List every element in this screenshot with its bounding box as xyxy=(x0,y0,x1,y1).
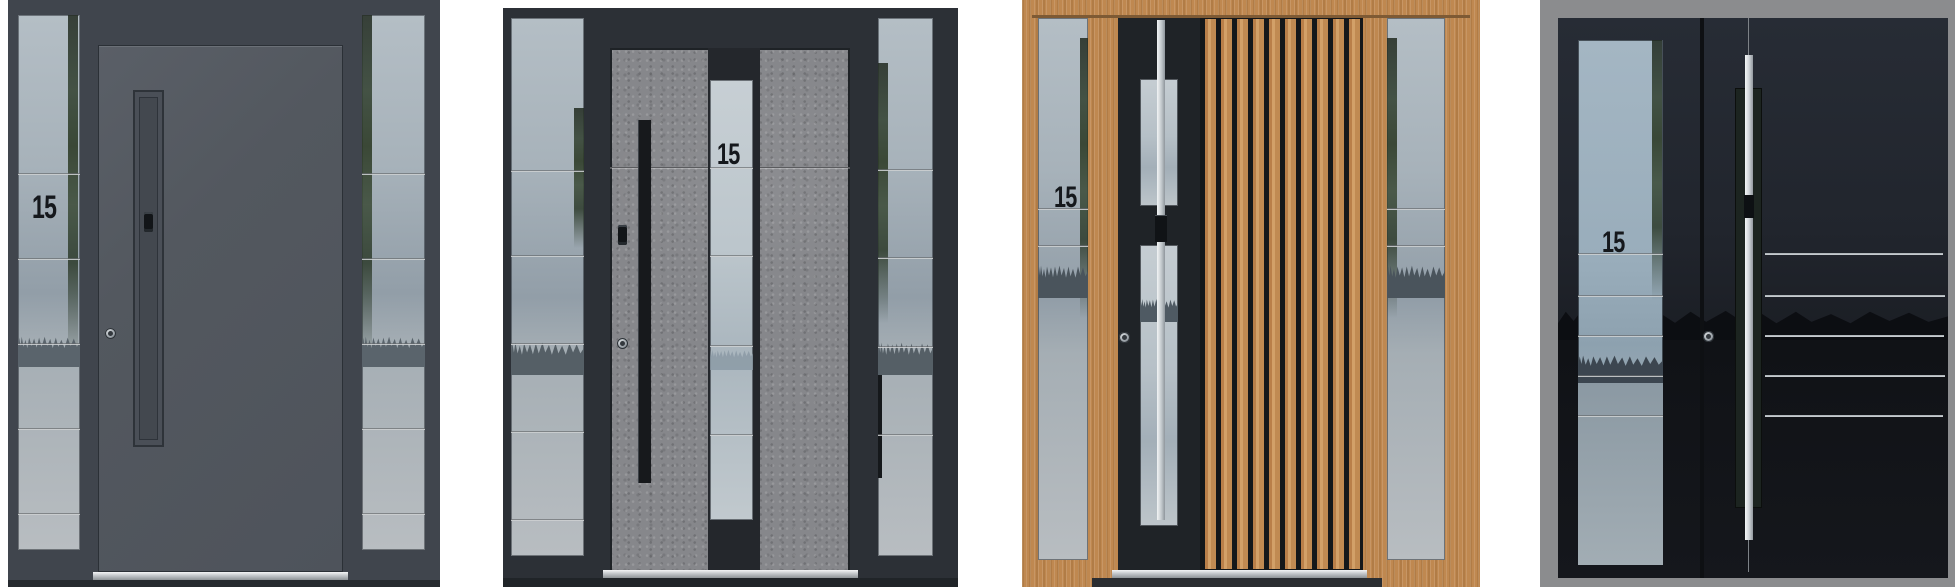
forest-reflection xyxy=(1578,345,1663,383)
house-number: 15 xyxy=(1054,183,1077,213)
steel-inlay-line xyxy=(1765,253,1943,255)
lock-cylinder-knob xyxy=(617,338,628,349)
handle-slot xyxy=(139,97,158,440)
tree-reflection xyxy=(68,15,78,360)
threshold xyxy=(93,572,348,580)
glass-divider xyxy=(1387,245,1445,247)
door-2-center-glass: 15 xyxy=(710,80,753,520)
bottom-rail xyxy=(8,580,440,587)
glass-divider xyxy=(878,346,933,348)
glass-divider xyxy=(878,257,933,259)
dark-reflection-band xyxy=(878,358,882,478)
door-3-figure[interactable]: 15 xyxy=(1022,0,1480,587)
glass-divider xyxy=(878,169,933,171)
door-2-figure[interactable]: 15 xyxy=(503,8,958,587)
door-2-right-sidelight-glass xyxy=(878,18,933,556)
glass-divider xyxy=(710,167,753,169)
glass-divider xyxy=(878,434,933,436)
forest-reflection xyxy=(878,330,933,375)
door-catalog-page: { "page": { "description": "Product gall… xyxy=(0,0,1960,587)
fingerprint-reader xyxy=(618,225,627,245)
lock-cylinder-knob xyxy=(1119,332,1130,343)
glass-divider xyxy=(18,173,80,175)
threshold xyxy=(1112,570,1367,578)
glass-divider xyxy=(1578,253,1663,255)
glass-divider xyxy=(18,258,80,260)
glass-divider xyxy=(18,513,80,515)
leaf-seam xyxy=(1700,18,1704,578)
handle-grip xyxy=(1155,215,1167,242)
glass-divider xyxy=(1578,295,1663,297)
glass-divider xyxy=(18,343,80,345)
door-1-left-sidelight-glass: 15 xyxy=(18,15,80,550)
glass-divider xyxy=(362,343,425,345)
glass-divider xyxy=(362,173,425,175)
handle-hairline-top xyxy=(1748,18,1749,55)
door-1-figure[interactable]: 15 xyxy=(8,0,440,587)
glass-divider xyxy=(511,170,584,172)
glass-divider xyxy=(1578,335,1663,337)
door-2-left-sidelight-glass xyxy=(511,18,584,556)
steel-inlay-line xyxy=(1765,295,1945,297)
vertical-slat-panel xyxy=(1200,18,1363,570)
glass-divider xyxy=(1578,375,1663,377)
door-3-left-sidelight-glass: 15 xyxy=(1038,18,1088,560)
recessed-handle-groove xyxy=(133,90,164,447)
steel-inlay-line xyxy=(1765,375,1945,377)
lock-cylinder-knob xyxy=(105,328,116,339)
house-number: 15 xyxy=(32,191,56,223)
door-1-right-sidelight-glass xyxy=(362,15,425,550)
glass-divider xyxy=(710,255,753,257)
steel-inlay-line xyxy=(1765,335,1944,337)
electronic-lock-module xyxy=(144,212,153,232)
tree-reflection xyxy=(362,15,372,360)
bottom-rail xyxy=(1092,578,1382,587)
door-1-leaf xyxy=(98,45,343,572)
fog-reflection xyxy=(1578,383,1663,565)
glass-divider xyxy=(18,428,80,430)
glass-divider xyxy=(362,258,425,260)
glass-divider xyxy=(511,519,584,521)
forest-reflection xyxy=(511,330,584,375)
door-4-figure[interactable]: 15 xyxy=(1540,0,1955,587)
glass-divider xyxy=(710,434,753,436)
glass-divider xyxy=(1578,415,1663,417)
tree-reflection xyxy=(574,108,584,248)
threshold xyxy=(603,570,858,578)
tree-reflection xyxy=(1652,40,1662,300)
glass-divider xyxy=(511,431,584,433)
stainless-bar-handle xyxy=(1745,55,1753,540)
glass-divider xyxy=(362,428,425,430)
glass-divider xyxy=(710,345,753,347)
glass-divider xyxy=(1038,245,1088,247)
glass-divider xyxy=(511,343,584,345)
glass-divider xyxy=(511,255,584,257)
glass-divider xyxy=(362,513,425,515)
handle-grip xyxy=(1744,195,1754,218)
bottom-rail xyxy=(503,578,958,587)
lock-cylinder-knob xyxy=(1703,331,1714,342)
stainless-bar-handle xyxy=(1157,20,1165,520)
door-3-right-sidelight-glass xyxy=(1387,18,1445,560)
glass-divider xyxy=(1387,208,1445,210)
steel-inlay-line xyxy=(1765,415,1943,417)
house-number: 15 xyxy=(717,140,740,170)
door-4-side-panel-glass: 15 xyxy=(1578,40,1663,565)
tree-reflection xyxy=(878,63,888,323)
black-bar-handle xyxy=(638,120,651,483)
handle-hairline-bottom xyxy=(1748,540,1749,572)
